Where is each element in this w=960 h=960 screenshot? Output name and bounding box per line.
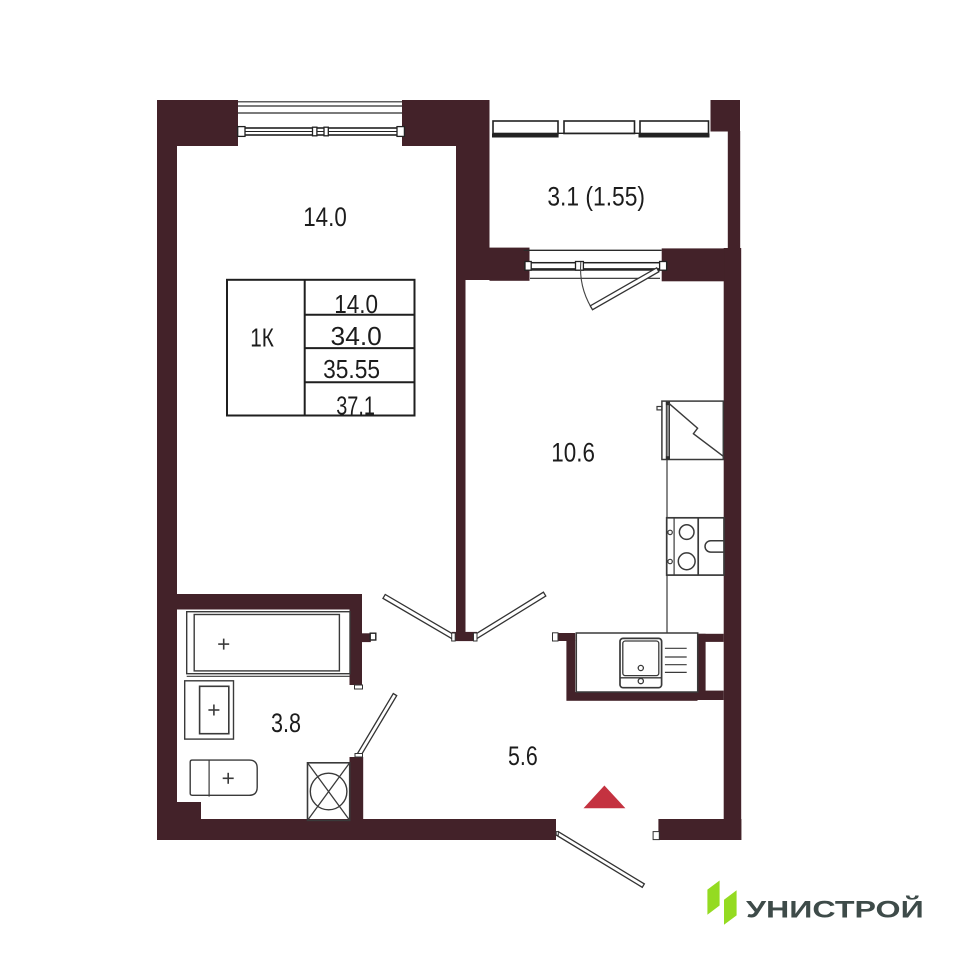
- svg-text:34.0: 34.0: [331, 323, 382, 351]
- svg-text:1К: 1К: [250, 324, 274, 352]
- svg-text:5.6: 5.6: [508, 741, 538, 771]
- svg-text:10.6: 10.6: [551, 438, 595, 468]
- svg-text:14.0: 14.0: [303, 202, 347, 232]
- svg-text:3.8: 3.8: [271, 708, 301, 738]
- svg-text:УНИСТРОЙ: УНИСТРОЙ: [746, 896, 924, 924]
- svg-text:14.0: 14.0: [334, 291, 378, 319]
- svg-text:35.55: 35.55: [323, 356, 380, 384]
- svg-text:3.1 (1.55): 3.1 (1.55): [547, 182, 645, 212]
- svg-text:37.1: 37.1: [336, 392, 375, 420]
